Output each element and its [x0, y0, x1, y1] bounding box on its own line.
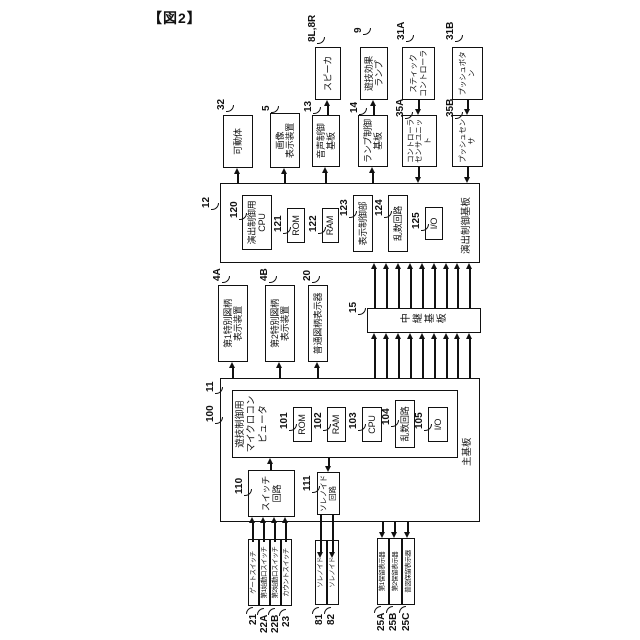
connection-arrowhead	[443, 264, 449, 270]
connection-arrowhead	[466, 334, 472, 340]
connection-arrow-line	[372, 172, 373, 183]
connection-arrowhead	[282, 518, 288, 524]
connection-arrowhead	[234, 169, 240, 175]
switch-circuit-box: スイッチ 回路	[248, 470, 295, 517]
ref-9: 9	[353, 27, 364, 33]
speaker-box: スピーカ	[315, 47, 341, 100]
connection-arrowhead	[260, 518, 266, 524]
ref-124: 124	[374, 199, 385, 216]
connection-arrow-line	[285, 522, 286, 542]
connection-arrow-line	[446, 338, 447, 378]
connection-arrowhead	[454, 334, 460, 340]
connection-arrow-line	[410, 268, 411, 308]
ref-31A: 31A	[396, 22, 407, 40]
push-button-box: プッシュボタン	[452, 47, 483, 100]
ref-111: 111	[302, 475, 313, 491]
ref-110: 110	[234, 478, 245, 494]
patent-figure-page: 【図2】 主基板 演出制御基板 遊技制御用 マイクロコンピュータ 中継基板 RO…	[0, 0, 640, 640]
ref-31B: 31B	[445, 22, 456, 40]
movable-body-box: 可動体	[223, 115, 253, 168]
ref-8L8R: 8L,8R	[307, 15, 318, 42]
connection-arrow-line	[284, 173, 285, 183]
controller-sensor-box: コントローラ センサユニット	[402, 115, 437, 167]
connection-arrow-line	[457, 268, 458, 308]
connection-arrowhead	[276, 363, 282, 369]
connection-arrowhead	[443, 334, 449, 340]
connection-arrowhead	[431, 264, 437, 270]
ref-11: 11	[205, 381, 216, 392]
display-control-box: 表示制御部	[353, 195, 373, 252]
ref-21: 21	[248, 614, 259, 625]
ref-101: 101	[279, 412, 290, 429]
ref-12: 12	[201, 197, 212, 208]
ref-105: 105	[414, 412, 425, 429]
ref-122: 122	[308, 215, 319, 232]
ref-104: 104	[381, 408, 392, 425]
connection-arrowhead	[229, 363, 235, 369]
connection-arrowhead	[419, 264, 425, 270]
connection-arrowhead	[466, 264, 472, 270]
connection-arrowhead	[464, 177, 470, 183]
connection-arrowhead	[267, 459, 273, 465]
stick-controller-box: スティック コントローラ	[402, 47, 435, 100]
connection-arrow-line	[434, 268, 435, 308]
normal-display-box: 普通図柄表示器	[308, 285, 328, 362]
connection-arrow-line	[422, 268, 423, 308]
ref-32: 32	[216, 99, 227, 110]
relay-board-box: 中継基板	[367, 308, 481, 333]
connection-arrow-line	[325, 172, 326, 183]
ref-13: 13	[303, 101, 314, 112]
connection-arrowhead	[395, 264, 401, 270]
connection-arrowhead	[314, 363, 320, 369]
effect-rom-box: ROM	[287, 208, 305, 243]
connection-arrowhead	[317, 552, 323, 558]
connection-arrow-line	[274, 522, 275, 542]
connection-arrowhead	[415, 109, 421, 115]
connection-arrowhead	[431, 334, 437, 340]
connection-arrow-line	[386, 268, 387, 308]
connection-arrowhead	[383, 334, 389, 340]
connection-arrow-line	[410, 338, 411, 378]
connection-arrow-line	[386, 338, 387, 378]
ref-25A: 25A	[376, 613, 387, 631]
ref-4B: 4B	[259, 268, 270, 281]
ref-22A: 22A	[259, 615, 270, 633]
ref-25B: 25B	[388, 613, 399, 631]
connection-arrow-line	[279, 367, 280, 378]
ref-102: 102	[313, 412, 324, 429]
ref-121: 121	[273, 215, 284, 232]
connection-arrow-line	[327, 105, 328, 115]
special1-display-box: 第1特別図柄 表示装置	[218, 285, 248, 362]
main-random-circuit-box: 乱数回路	[395, 400, 415, 448]
connection-arrowhead	[383, 264, 389, 270]
connection-arrow-line	[434, 338, 435, 378]
start1-switch-box: 第1始動口スイッチ	[259, 539, 270, 606]
connection-arrowhead	[454, 264, 460, 270]
hold3-display-box: 普図保留表示器	[402, 538, 415, 605]
connection-arrowhead	[407, 334, 413, 340]
connection-arrowhead	[371, 334, 377, 340]
hold1-display-box: 第1保留表示器	[377, 538, 389, 605]
connection-arrowhead	[404, 532, 410, 538]
effect-ram-box: RAM	[322, 208, 339, 243]
ref-100: 100	[205, 405, 216, 422]
ref-123: 123	[339, 199, 350, 216]
connection-arrow-line	[374, 338, 375, 378]
image-display-box: 画像 表示装置	[270, 113, 300, 168]
connection-arrowhead	[369, 168, 375, 174]
connection-arrowhead	[464, 109, 470, 115]
connection-arrowhead	[370, 101, 376, 107]
effect-control-board-label: 演出制御基板	[461, 197, 472, 254]
connection-arrowhead	[415, 177, 421, 183]
hold2-display-box: 第2保留表示器	[389, 538, 402, 605]
connection-arrow-line	[237, 173, 238, 183]
count-switch-box: カウントスイッチ	[281, 539, 292, 606]
ref-5: 5	[261, 105, 272, 111]
connection-arrowhead	[407, 264, 413, 270]
ref-125: 125	[411, 212, 422, 229]
connection-arrowhead	[329, 552, 335, 558]
connection-arrowhead	[271, 518, 277, 524]
ref-15: 15	[348, 302, 359, 313]
ref-103: 103	[348, 412, 359, 429]
effect-random-circuit-box: 乱数回路	[388, 195, 408, 252]
connection-arrow-line	[374, 268, 375, 308]
solenoid-circuit-box: ソレノイド 回路	[317, 472, 340, 515]
diagram-canvas: 主基板 演出制御基板 遊技制御用 マイクロコンピュータ 中継基板 ROM RAM…	[148, 8, 494, 640]
effect-lamp-box: 遊技効果 ランプ	[360, 47, 388, 100]
ref-22B: 22B	[270, 615, 281, 633]
push-sensor-box: プッシュセンサ	[452, 115, 483, 167]
ref-4A: 4A	[212, 268, 223, 281]
sound-control-board-box: 音声制御 基板	[312, 115, 340, 167]
connection-arrow-line	[398, 338, 399, 378]
special2-display-box: 第2特別図柄 表示装置	[265, 285, 295, 362]
connection-arrow-line	[332, 515, 333, 553]
connection-arrow-line	[422, 338, 423, 378]
connection-arrow-line	[320, 515, 321, 553]
connection-arrow-line	[252, 522, 253, 542]
connection-arrow-line	[232, 367, 233, 378]
connection-arrowhead	[395, 334, 401, 340]
ref-35B: 35B	[445, 99, 456, 117]
connection-arrow-line	[469, 338, 470, 378]
gate-switch-box: ゲートスイッチ	[248, 539, 259, 606]
connection-arrowhead	[324, 101, 330, 107]
ref-23: 23	[281, 616, 292, 627]
connection-arrow-line	[446, 268, 447, 308]
connection-arrowhead	[391, 532, 397, 538]
effect-cpu-box: 演出制御用 CPU	[242, 195, 272, 250]
start2-switch-box: 第2始動口スイッチ	[270, 539, 281, 606]
ref-35A: 35A	[395, 99, 406, 117]
connection-arrow-line	[373, 105, 374, 115]
connection-arrowhead	[419, 334, 425, 340]
ref-120: 120	[229, 201, 240, 218]
connection-arrow-line	[398, 268, 399, 308]
ref-14: 14	[349, 102, 360, 113]
game-microcomputer-label: 遊技制御用 マイクロコンピュータ	[235, 391, 269, 457]
connection-arrowhead	[249, 518, 255, 524]
connection-arrow-line	[469, 268, 470, 308]
connection-arrowhead	[322, 168, 328, 174]
connection-arrow-line	[263, 522, 264, 542]
ref-25C: 25C	[401, 613, 412, 631]
connection-arrowhead	[371, 264, 377, 270]
ref-81: 81	[314, 614, 325, 625]
connection-arrow-line	[317, 367, 318, 378]
ref-82: 82	[326, 614, 337, 625]
main-board-label: 主基板	[462, 437, 473, 466]
lamp-control-board-box: ランプ制御 基板	[358, 115, 388, 167]
ref-20: 20	[302, 270, 313, 281]
connection-arrowhead	[379, 532, 385, 538]
connection-arrowhead	[281, 169, 287, 175]
connection-arrow-line	[457, 338, 458, 378]
